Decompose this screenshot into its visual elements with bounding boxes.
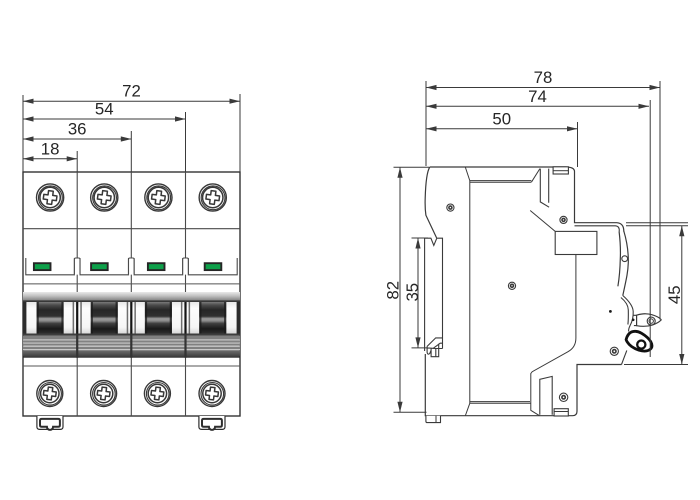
svg-text:35: 35 (403, 283, 422, 302)
svg-text:50: 50 (492, 109, 511, 128)
svg-text:72: 72 (122, 82, 141, 101)
svg-text:18: 18 (41, 139, 60, 158)
svg-text:82: 82 (383, 281, 402, 300)
svg-text:74: 74 (528, 87, 547, 106)
svg-text:54: 54 (95, 100, 114, 119)
svg-text:78: 78 (534, 68, 553, 87)
svg-text:36: 36 (68, 120, 87, 139)
svg-text:45: 45 (665, 285, 684, 304)
